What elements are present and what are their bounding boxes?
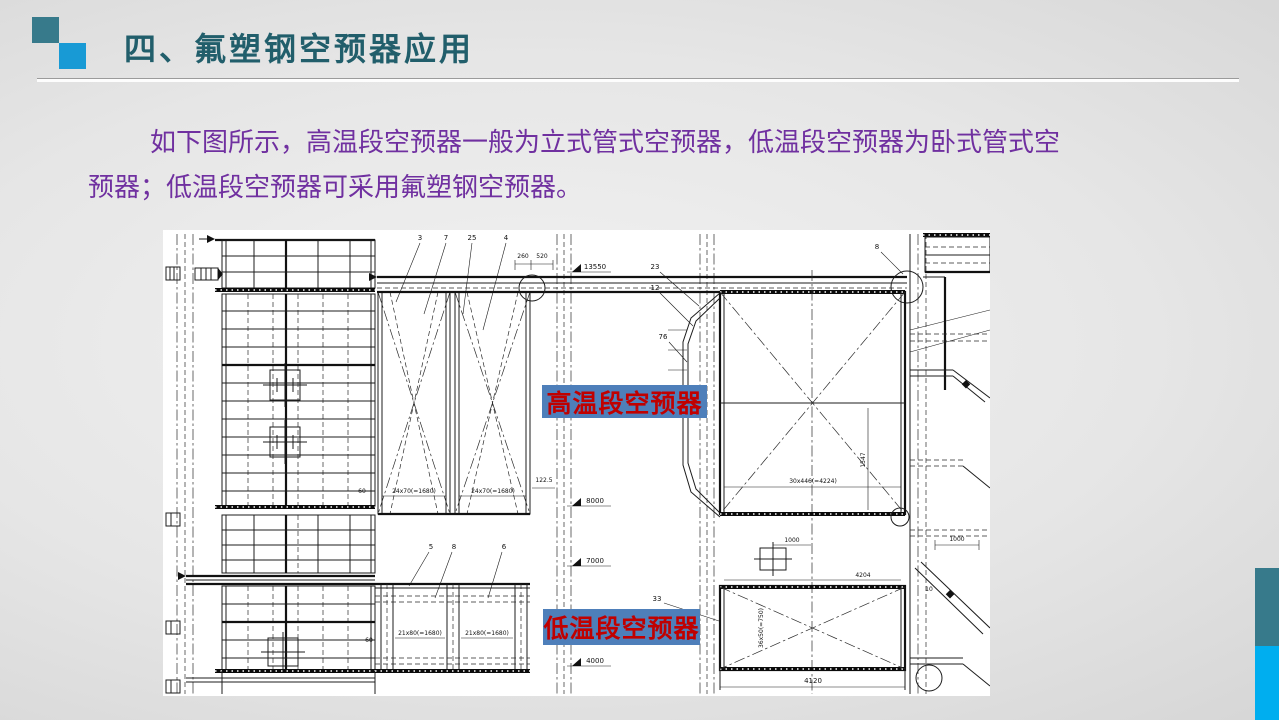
decor-square-blue [59, 43, 86, 69]
dimension-label: 1000 [784, 537, 799, 544]
dimension-label: 36x50(=750) [758, 608, 765, 648]
part-number: 3 [418, 234, 422, 242]
part-number: 23 [651, 263, 660, 271]
body-text-line-2: 预器；低温段空预器可采用氟塑钢空预器。 [88, 167, 582, 204]
decor-strip-teal [1255, 568, 1279, 646]
dimension-label: 30x446(=4224) [789, 478, 837, 485]
lower-x-braced-duct: 36x50(=750) 4120 [720, 508, 942, 691]
part-number: 25 [468, 234, 477, 242]
dimension-label: 260 [517, 253, 529, 260]
part-number: 12 [651, 284, 660, 292]
dimension-label: 122.5 [535, 477, 552, 484]
part-number: 76 [659, 333, 668, 341]
elevation-label: 13550 [584, 263, 606, 271]
label-high-temp-preheater: 高温段空预器 [542, 385, 707, 418]
elevation-markers: 13550 8000 7000 4000 [567, 263, 611, 666]
dimension-label: 24x70(=1680) [392, 488, 436, 495]
part-number: 8 [452, 543, 456, 551]
dimension-label: 60 [358, 488, 366, 495]
dimension-label: 24x70(=1680) [471, 488, 515, 495]
dimension-label: 21x80(=1680) [398, 630, 442, 637]
title-divider [37, 78, 1239, 82]
low-temp-tube-bank: 21x80(=1680) 21x80(=1680) 60 [365, 584, 530, 671]
decor-strip-blue [1255, 646, 1279, 720]
elevation-label: 7000 [586, 557, 604, 565]
part-number: 5 [429, 543, 433, 551]
dimension-label: 1000 [949, 536, 964, 543]
decor-square-teal [32, 17, 59, 43]
part-number: 7 [444, 234, 448, 242]
dimension-label: 21x80(=1680) [465, 630, 509, 637]
label-low-temp-preheater: 低温段空预器 [543, 609, 700, 645]
presentation-slide: 四、氟塑钢空预器应用 如下图所示，高温段空预器一般为立式管式空预器，低温段空预器… [0, 0, 1279, 720]
elevation-label: 8000 [586, 497, 604, 505]
right-side-ductwork: 1000 10 [910, 235, 990, 686]
dimension-label: 4120 [804, 677, 822, 685]
part-number: 10 [925, 586, 933, 593]
part-number: 6 [502, 543, 507, 551]
top-flue-duct: 260 520 [369, 253, 923, 303]
boiler-wall-grid [178, 235, 375, 694]
part-number: 33 [653, 595, 662, 603]
elevation-label: 4000 [586, 657, 604, 665]
body-text-line-1: 如下图所示，高温段空预器一般为立式管式空预器，低温段空预器为卧式管式空 [88, 122, 1060, 159]
part-number: 8 [875, 243, 879, 251]
dimension-label: 60 [365, 637, 373, 644]
dimension-label: 520 [536, 253, 548, 260]
slide-title: 四、氟塑钢空预器应用 [124, 24, 474, 70]
part-number: 4 [504, 234, 509, 242]
engineering-drawing: 24x70(=1680) 24x70(=1680) 60 122.5 3 7 2… [163, 230, 990, 696]
dimension-label: 4204 [855, 572, 870, 579]
dimension-label: 1547 [860, 452, 867, 467]
